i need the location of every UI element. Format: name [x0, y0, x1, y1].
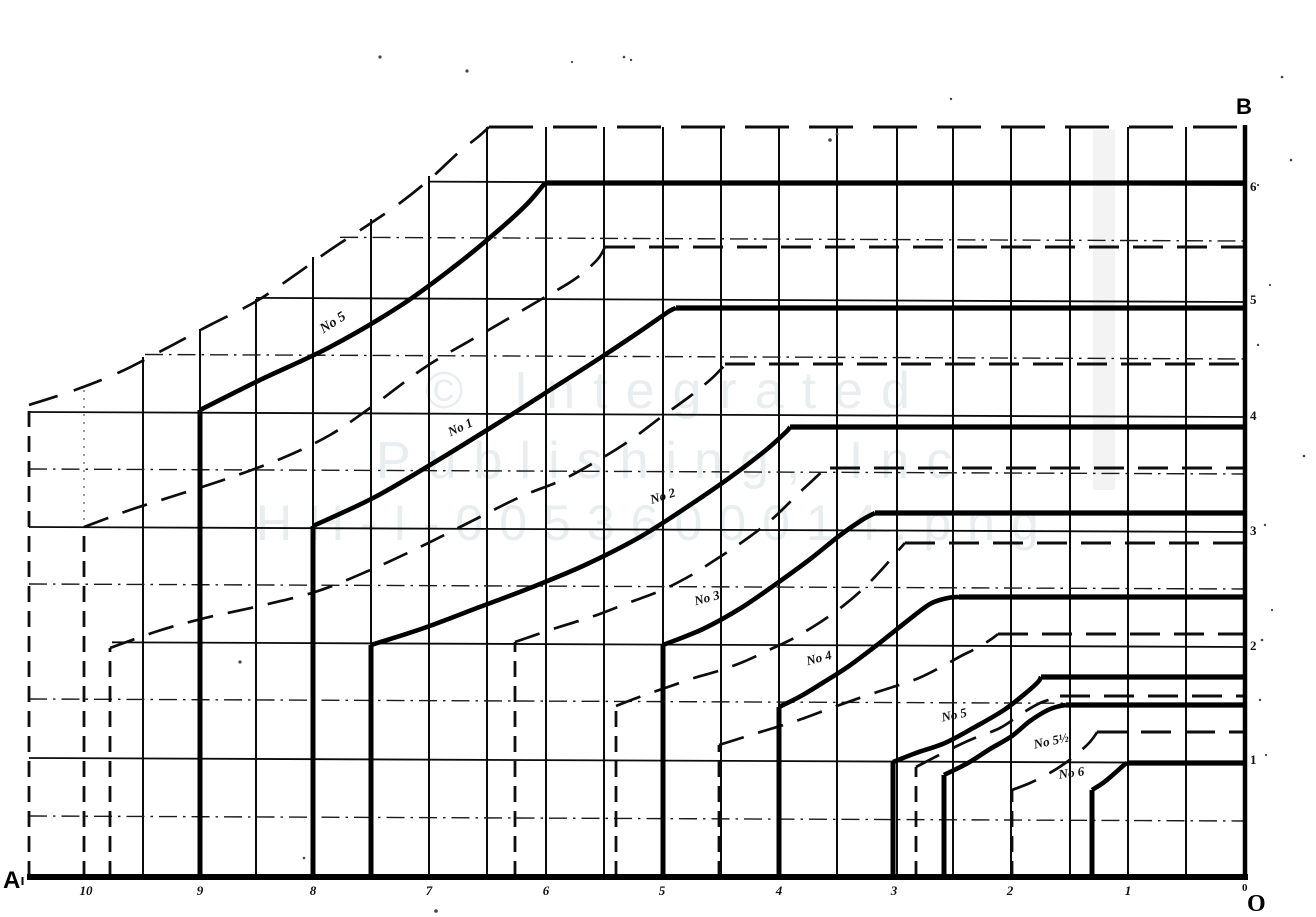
svg-text:3: 3 — [1250, 523, 1257, 538]
svg-text:4: 4 — [775, 883, 783, 898]
svg-text:2: 2 — [1006, 883, 1014, 898]
svg-text:3: 3 — [890, 883, 898, 898]
svg-text:9: 9 — [197, 883, 204, 898]
svg-text:B: B — [1236, 94, 1252, 119]
svg-text:6: 6 — [543, 883, 550, 898]
svg-text:O: O — [1247, 891, 1266, 917]
svg-text:5: 5 — [1250, 292, 1257, 307]
svg-text:6: 6 — [1250, 179, 1257, 194]
svg-text:10: 10 — [80, 883, 94, 898]
svg-text:1: 1 — [1125, 883, 1132, 898]
svg-text:Publishing, Inc: Publishing, Inc — [376, 432, 969, 490]
svg-text:8: 8 — [310, 883, 317, 898]
svg-text:4: 4 — [1250, 408, 1257, 423]
svg-text:© Integrated: © Integrated — [425, 362, 928, 420]
svg-text:7: 7 — [426, 883, 433, 898]
svg-text:5: 5 — [659, 883, 666, 898]
svg-text:1: 1 — [1250, 752, 1257, 767]
svg-text:A: A — [3, 867, 20, 894]
svg-text:2: 2 — [1250, 638, 1257, 653]
